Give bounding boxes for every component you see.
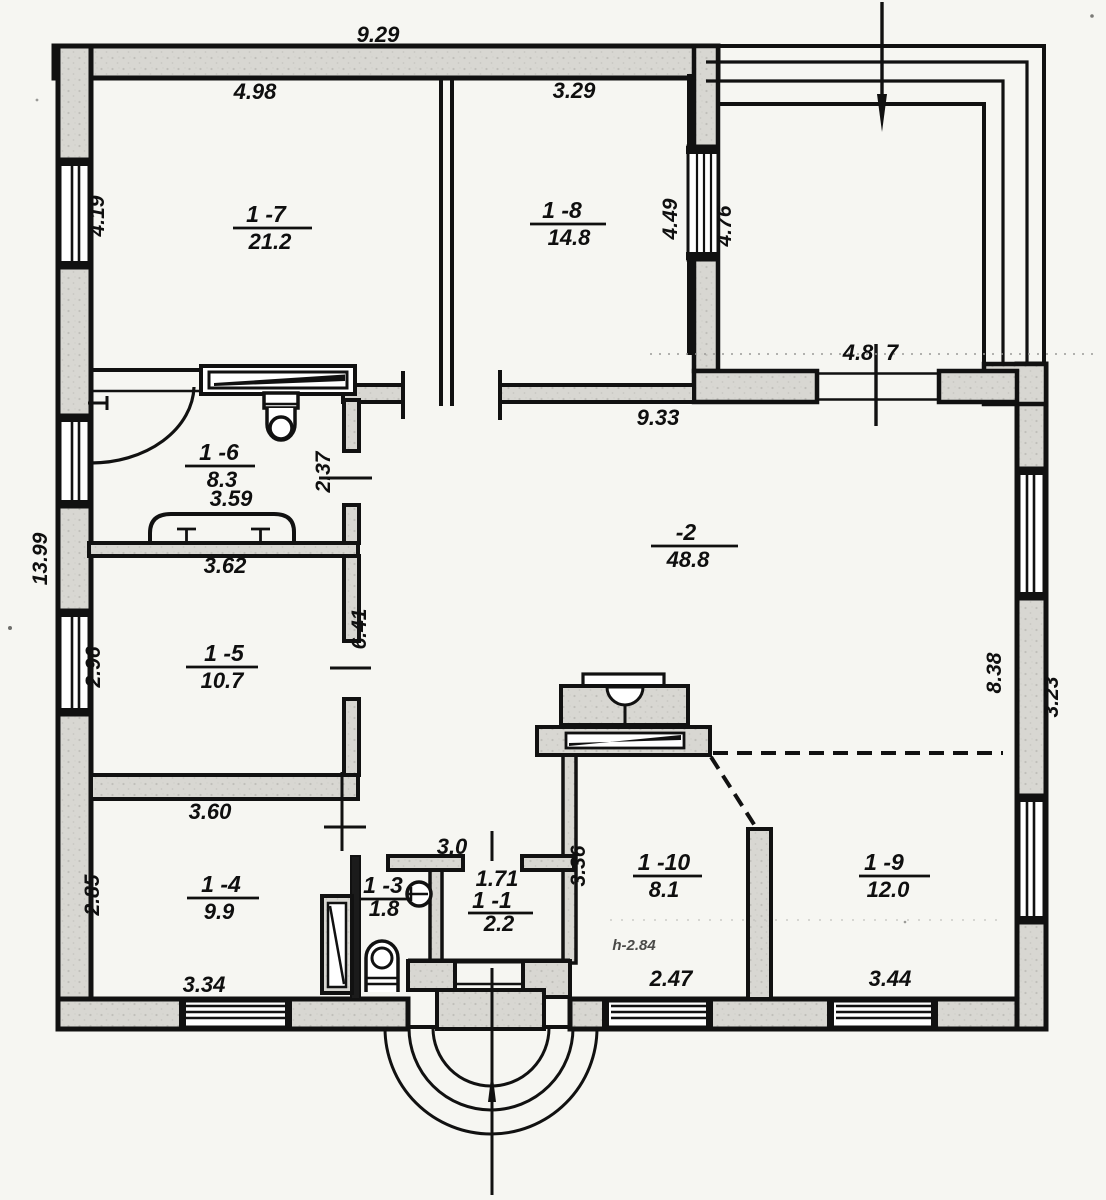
svg-text:3.23: 3.23 — [1040, 676, 1063, 717]
svg-text:3.59: 3.59 — [210, 486, 254, 511]
svg-text:-2: -2 — [676, 519, 697, 545]
svg-text:2.2: 2.2 — [483, 911, 515, 936]
svg-text:2.96: 2.96 — [82, 646, 105, 688]
svg-text:h-2.84: h-2.84 — [612, 937, 656, 954]
svg-text:1.71: 1.71 — [476, 866, 519, 891]
svg-text:2.85: 2.85 — [81, 874, 104, 916]
svg-text:4.19: 4.19 — [86, 195, 109, 237]
svg-text:9.9: 9.9 — [204, 899, 235, 924]
svg-text:9.29: 9.29 — [357, 22, 401, 47]
svg-text:14.8: 14.8 — [548, 225, 592, 250]
svg-text:21.2: 21.2 — [248, 229, 293, 254]
svg-text:1 -5: 1 -5 — [204, 640, 245, 666]
svg-text:8.1: 8.1 — [649, 877, 680, 902]
svg-text:2.37: 2.37 — [312, 450, 335, 493]
svg-text:9.33: 9.33 — [637, 405, 680, 430]
svg-text:1 -7: 1 -7 — [246, 201, 287, 227]
svg-text:3.36: 3.36 — [567, 845, 590, 886]
svg-text:3.60: 3.60 — [189, 799, 233, 824]
svg-text:1 -4: 1 -4 — [201, 871, 241, 897]
svg-text:48.8: 48.8 — [666, 547, 711, 572]
svg-text:1 -8: 1 -8 — [542, 197, 582, 223]
svg-text:4.76: 4.76 — [713, 205, 736, 247]
svg-text:4.98: 4.98 — [233, 79, 278, 104]
svg-text:6.41: 6.41 — [348, 609, 371, 650]
svg-text:1 -3: 1 -3 — [363, 872, 403, 898]
svg-text:12.0: 12.0 — [867, 877, 911, 902]
svg-text:1.8: 1.8 — [369, 896, 400, 921]
svg-text:3.44: 3.44 — [869, 966, 912, 991]
svg-text:13.99: 13.99 — [29, 532, 52, 585]
svg-text:3.34: 3.34 — [183, 972, 226, 997]
svg-text:4.49: 4.49 — [659, 198, 682, 240]
svg-text:10.7: 10.7 — [201, 668, 246, 693]
svg-text:8.38: 8.38 — [983, 652, 1006, 693]
svg-text:3.0: 3.0 — [437, 834, 468, 859]
svg-text:1 -10: 1 -10 — [638, 849, 691, 875]
svg-text:1 -9: 1 -9 — [864, 849, 904, 875]
svg-text:7: 7 — [886, 340, 900, 365]
svg-text:4.8: 4.8 — [842, 340, 874, 365]
svg-text:3.29: 3.29 — [553, 78, 597, 103]
svg-text:3.62: 3.62 — [204, 553, 248, 578]
svg-text:1 -6: 1 -6 — [199, 439, 239, 465]
svg-text:2.47: 2.47 — [649, 966, 695, 991]
